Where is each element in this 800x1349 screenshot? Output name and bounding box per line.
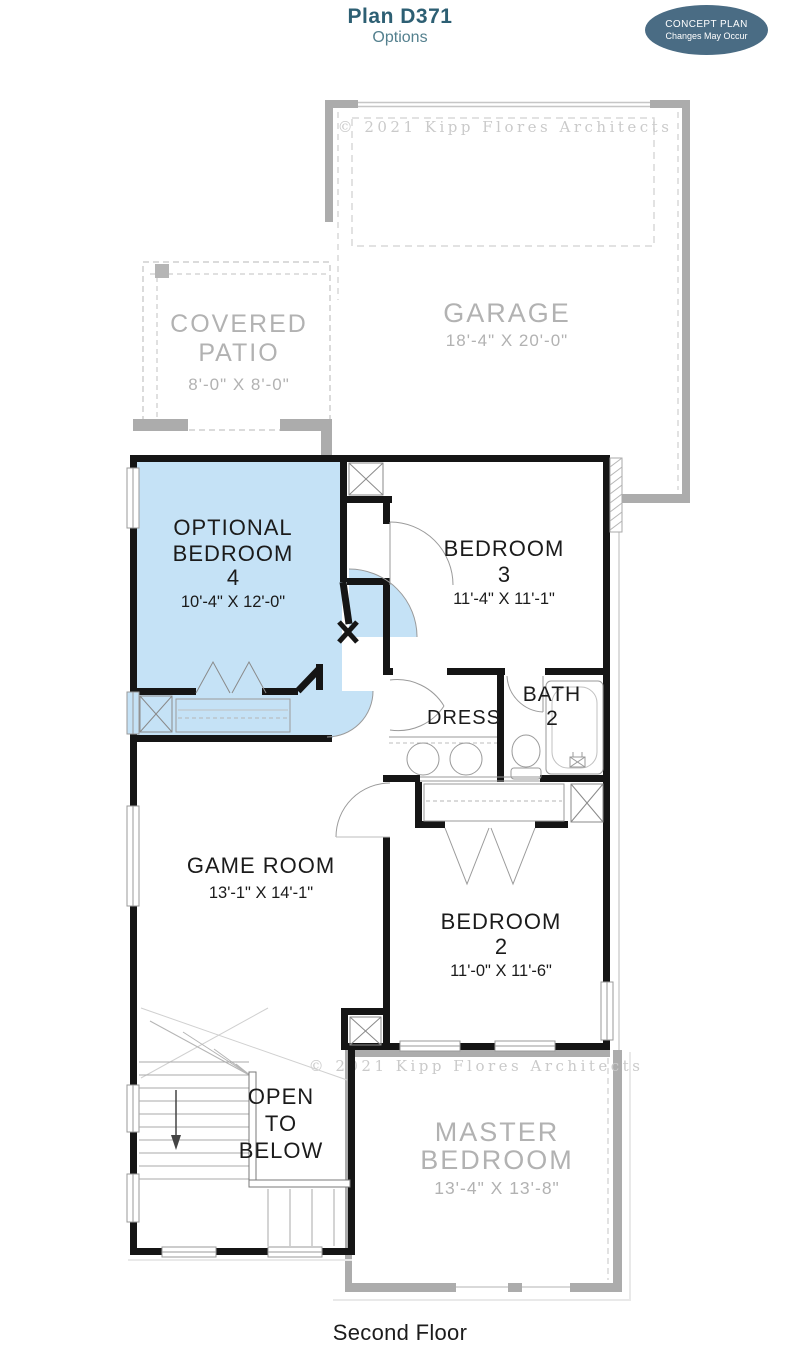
linen-closet-top [349,463,383,495]
window-bottom-1 [162,1247,216,1257]
room-dims-optbed4: 10'-4" X 12'-0" [181,593,285,611]
room-dims-gameroom: 13'-1" X 14'-1" [209,884,313,902]
room-label-garage: GARAGE [443,298,571,328]
room-label-dress: DRESS [427,707,501,729]
room-label-bedroom2-1: BEDROOM [441,909,562,934]
window-left-stairs-2 [127,1174,139,1222]
room-dims-patio: 8'-0" X 8'-0" [188,375,290,394]
room-label-bedroom3-1: BEDROOM [444,536,565,561]
window-left-gameroom [127,806,139,906]
room-dims-bedroom2: 11'-0" X 11'-6" [450,962,552,980]
room-label-optbed4-3: 4 [227,565,239,590]
room-label-gameroom: GAME ROOM [187,853,335,878]
room-label-openbelow-3: BELOW [239,1138,323,1163]
room-dims-garage: 18'-4" X 20'-0" [446,331,568,350]
room-label-patio-2: PATIO [198,339,279,367]
room-label-master-2: BEDROOM [420,1145,574,1175]
window-bottom-2 [268,1247,322,1257]
stairs [139,1008,347,1246]
toilet [511,735,541,779]
concept-plan-badge: CONCEPT PLAN Changes May Occur [645,5,768,55]
door-arc-bedroom2 [336,783,390,837]
room-label-optbed4-1: OPTIONAL [173,515,292,540]
window-left-closet [127,692,139,734]
window-bedroom2-bottom-1 [400,1041,460,1051]
badge-line2: Changes May Occur [665,31,747,41]
dress-vanity [389,737,497,775]
bedroom2-closet [424,784,564,884]
watermark-garage: © 2021 Kipp Flores Architects [338,118,673,136]
window-left-bed4 [127,468,139,528]
room-label-bedroom3-2: 3 [498,562,510,587]
room-label-openbelow-2: TO [265,1111,297,1136]
plan-footer: Second Floor [0,1320,800,1346]
room-dims-master: 13'-4" X 13'-8" [434,1178,560,1198]
closet-xbox-bath [571,784,603,822]
window-bedroom2-bottom-2 [495,1041,555,1051]
window-right-bedroom2 [601,982,613,1040]
badge-line1: CONCEPT PLAN [665,19,747,30]
watermark-master: © 2021 Kipp Flores Architects [309,1057,644,1075]
room-label-bedroom2-2: 2 [495,934,507,959]
room-label-openbelow-1: OPEN [248,1084,314,1109]
room-label-master-1: MASTER [435,1117,560,1147]
room-label-optbed4-2: BEDROOM [173,541,294,566]
room-label-bath2-2: 2 [546,707,558,730]
room-label-bath2-1: BATH [523,683,581,706]
room-dims-bedroom3: 11'-4" X 11'-1" [453,590,555,608]
floor-plan-drawing: © 2021 Kipp Flores Architects © 2021 Kip… [0,0,800,1349]
window-hatch-bedroom3 [610,458,622,532]
room-label-patio-1: COVERED [170,310,308,338]
floor-label: Second Floor [0,1320,800,1346]
floor-plan-page: { "page": {"title": "Plan D371", "subtit… [0,0,800,1349]
closet-xbox-hall [350,1017,381,1045]
stair-down-arrow [171,1090,181,1150]
window-left-stairs-1 [127,1085,139,1132]
